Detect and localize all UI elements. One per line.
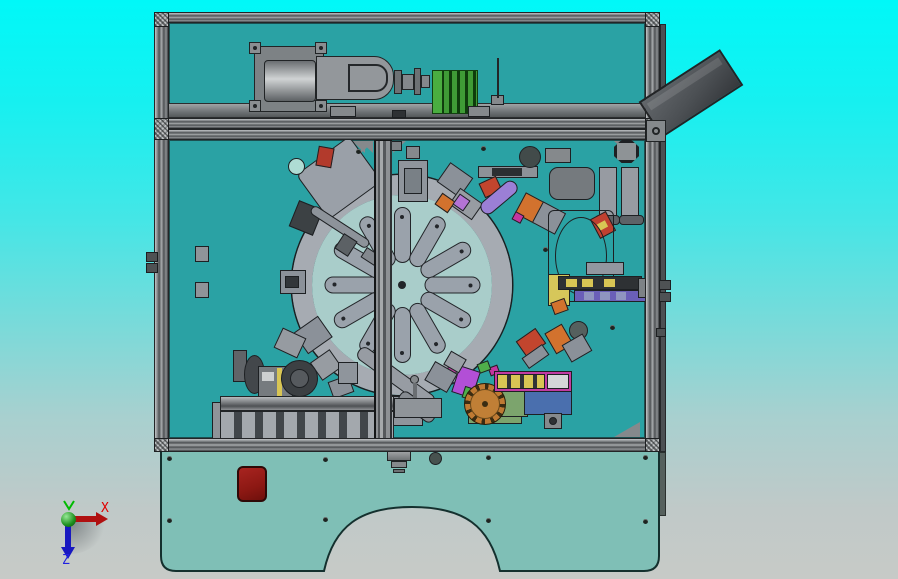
index-gear-center <box>470 389 500 419</box>
screw-icon <box>356 149 361 154</box>
frame-rail-top <box>154 12 660 23</box>
screw-icon <box>323 517 328 522</box>
table-slot <box>394 207 411 263</box>
screw-icon <box>481 146 486 151</box>
gusset-icon <box>393 141 406 153</box>
z-axis-label: Z <box>62 553 70 568</box>
top-compartment-shelf <box>169 103 645 118</box>
mount-foot-icon <box>249 100 261 112</box>
rotary-table-hub <box>398 281 406 289</box>
screw-icon <box>543 247 548 252</box>
axis-triad: X Z <box>54 496 134 576</box>
screw-icon <box>323 457 328 462</box>
screw-icon <box>643 455 648 460</box>
y-axis-caret-icon <box>61 500 77 512</box>
table-slot <box>324 277 380 294</box>
x-axis-label: X <box>101 501 109 516</box>
motor-body <box>264 60 316 102</box>
rail-fitting <box>146 252 158 262</box>
heatsink-controller <box>432 70 478 114</box>
mount-foot-icon <box>315 42 327 54</box>
corner-gusset-icon <box>614 422 640 437</box>
origin-sphere-icon <box>61 512 76 527</box>
corner-cube-icon <box>154 118 169 140</box>
skirt-fitting <box>391 461 407 468</box>
table-slot <box>424 277 480 294</box>
motor-shaft-tip <box>421 75 430 88</box>
slat-unit-cells <box>497 374 545 389</box>
center-divider-profile <box>374 140 392 438</box>
rail-fitting <box>656 328 666 337</box>
motor-shaft <box>402 74 414 90</box>
conveyor-rail <box>220 396 394 411</box>
frame-rail-left <box>154 12 169 452</box>
skirt-fitting <box>393 469 405 473</box>
screw-icon <box>610 325 615 330</box>
mount-foot-icon <box>315 100 327 112</box>
skirt-panel <box>158 450 664 574</box>
rail-fitting <box>659 292 671 302</box>
screw-icon <box>167 456 172 461</box>
triad-shadow <box>70 522 106 554</box>
cad-viewport[interactable]: X Z <box>0 0 898 579</box>
motor-head-slot <box>348 64 388 92</box>
rail-fitting <box>659 280 671 290</box>
frame-rail-bottom <box>154 438 660 452</box>
frame-rail-mid-upper <box>154 118 660 129</box>
chute-pivot-icon <box>652 127 660 135</box>
slat-unit-end-cell <box>547 374 569 389</box>
table-slot <box>394 307 411 363</box>
motor-shaft-disc <box>414 68 421 95</box>
corner-cube-icon <box>645 438 660 452</box>
corner-cube-icon <box>154 12 169 27</box>
frame-rail-right <box>645 12 660 452</box>
rail-fitting <box>146 263 158 273</box>
vent-hole <box>429 452 442 465</box>
corner-cube-icon <box>645 12 660 27</box>
emergency-stop-button[interactable] <box>237 466 267 502</box>
motor-collar <box>394 70 402 94</box>
screw-icon <box>486 455 491 460</box>
screw-icon <box>167 518 172 523</box>
screw-icon <box>486 518 491 523</box>
mount-foot-icon <box>249 42 261 54</box>
corner-cube-icon <box>154 438 169 452</box>
frame-rail-mid-lower <box>154 129 660 140</box>
screw-icon <box>643 519 648 524</box>
gusset-icon <box>360 141 373 153</box>
conveyor-slats <box>220 411 394 439</box>
gusset-icon <box>614 141 627 153</box>
